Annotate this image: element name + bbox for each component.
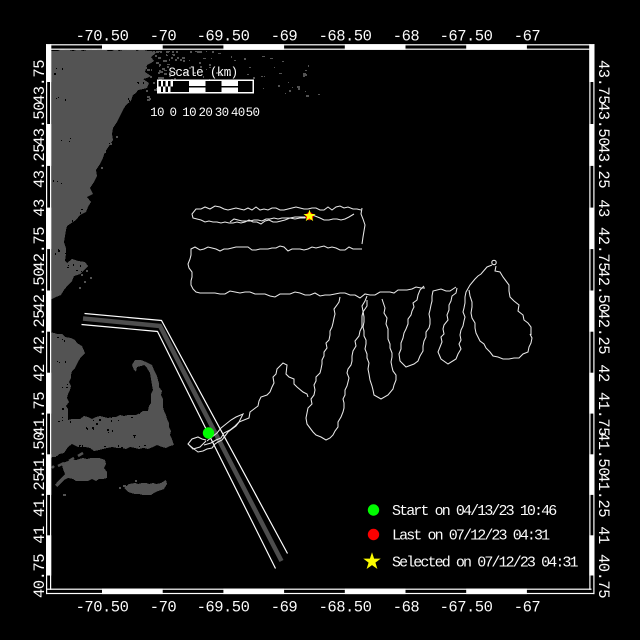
svg-text:-67.50: -67.50 xyxy=(440,599,493,617)
svg-text:Selected on 07/12/23 04:31: Selected on 07/12/23 04:31 xyxy=(392,555,579,572)
svg-text:41.75: 41.75 xyxy=(31,392,49,436)
svg-text:-70.50: -70.50 xyxy=(76,599,129,617)
svg-text:-70: -70 xyxy=(150,599,177,617)
svg-text:50: 50 xyxy=(246,106,260,120)
svg-text:43.25: 43.25 xyxy=(31,144,49,188)
svg-text:30: 30 xyxy=(215,106,229,120)
svg-text:-70: -70 xyxy=(150,28,177,46)
svg-text:10: 10 xyxy=(150,106,164,120)
svg-text:43.50: 43.50 xyxy=(31,102,49,146)
svg-text:-69: -69 xyxy=(271,599,298,617)
svg-text:41.25: 41.25 xyxy=(594,473,612,517)
svg-text:-69: -69 xyxy=(271,28,298,46)
svg-text:-68.50: -68.50 xyxy=(319,28,372,46)
svg-text:-67.50: -67.50 xyxy=(440,28,493,46)
svg-text:0: 0 xyxy=(170,106,177,120)
svg-text:41.75: 41.75 xyxy=(594,392,612,436)
svg-text:43: 43 xyxy=(31,199,49,217)
svg-text:41.25: 41.25 xyxy=(31,473,49,517)
svg-text:42.75: 42.75 xyxy=(594,227,612,271)
svg-text:-68: -68 xyxy=(393,599,420,617)
svg-text:42: 42 xyxy=(594,364,612,382)
svg-text:Last on 07/12/23 04:31: Last on 07/12/23 04:31 xyxy=(392,528,550,545)
svg-text:43.75: 43.75 xyxy=(594,60,612,104)
svg-text:41: 41 xyxy=(31,526,49,544)
svg-text:41.50: 41.50 xyxy=(31,432,49,476)
svg-text:-67: -67 xyxy=(514,599,541,617)
svg-text:-69.50: -69.50 xyxy=(197,599,250,617)
svg-text:42: 42 xyxy=(31,364,49,382)
svg-text:-67: -67 xyxy=(514,28,541,46)
svg-text:40: 40 xyxy=(231,106,245,120)
svg-text:42.25: 42.25 xyxy=(594,310,612,354)
svg-text:-69.50: -69.50 xyxy=(197,28,250,46)
svg-text:10: 10 xyxy=(182,106,196,120)
svg-text:40.75: 40.75 xyxy=(594,554,612,598)
svg-text:41.50: 41.50 xyxy=(594,432,612,476)
svg-text:42.50: 42.50 xyxy=(594,268,612,312)
svg-text:41: 41 xyxy=(594,526,612,544)
svg-text:20: 20 xyxy=(198,106,212,120)
svg-text:40.75: 40.75 xyxy=(31,554,49,598)
svg-text:-68.50: -68.50 xyxy=(319,599,372,617)
svg-text:42.25: 42.25 xyxy=(31,310,49,354)
svg-text:Start on 04/13/23 10:46: Start on 04/13/23 10:46 xyxy=(392,503,557,520)
svg-text:43.25: 43.25 xyxy=(594,144,612,188)
svg-text:43.50: 43.50 xyxy=(594,102,612,146)
svg-text:42.75: 42.75 xyxy=(31,227,49,271)
svg-text:43: 43 xyxy=(594,199,612,217)
svg-text:42.50: 42.50 xyxy=(31,268,49,312)
svg-text:Scale (km): Scale (km) xyxy=(168,66,237,80)
svg-text:43.75: 43.75 xyxy=(31,60,49,104)
svg-text:-68: -68 xyxy=(393,28,420,46)
svg-text:-70.50: -70.50 xyxy=(76,28,129,46)
